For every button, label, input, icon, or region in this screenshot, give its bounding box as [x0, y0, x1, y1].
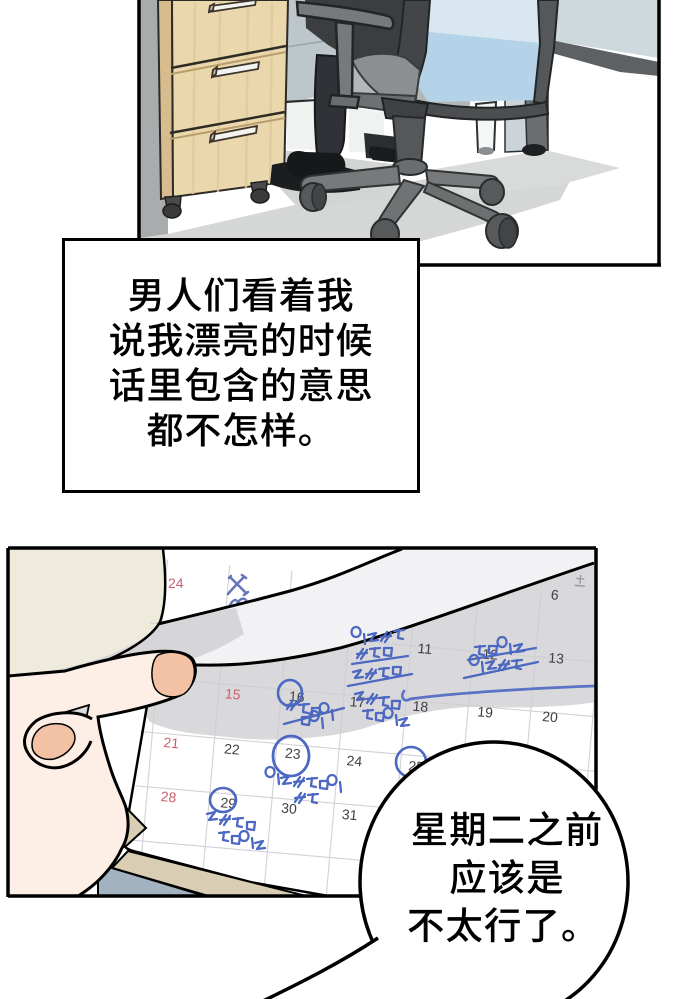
- svg-text:20: 20: [542, 708, 559, 725]
- svg-text:28: 28: [160, 788, 177, 805]
- svg-text:11: 11: [417, 640, 433, 657]
- svg-text:24: 24: [168, 575, 184, 591]
- svg-text:15: 15: [224, 685, 241, 702]
- svg-text:18: 18: [412, 698, 429, 715]
- svg-text:6: 6: [550, 586, 559, 603]
- svg-text:17: 17: [349, 693, 366, 710]
- svg-text:23: 23: [284, 745, 301, 762]
- svg-text:31: 31: [341, 806, 358, 823]
- svg-text:21: 21: [163, 734, 180, 751]
- svg-text:22: 22: [224, 740, 241, 757]
- svg-text:13: 13: [548, 649, 565, 666]
- svg-text:19: 19: [477, 703, 494, 720]
- svg-text:24: 24: [346, 752, 363, 769]
